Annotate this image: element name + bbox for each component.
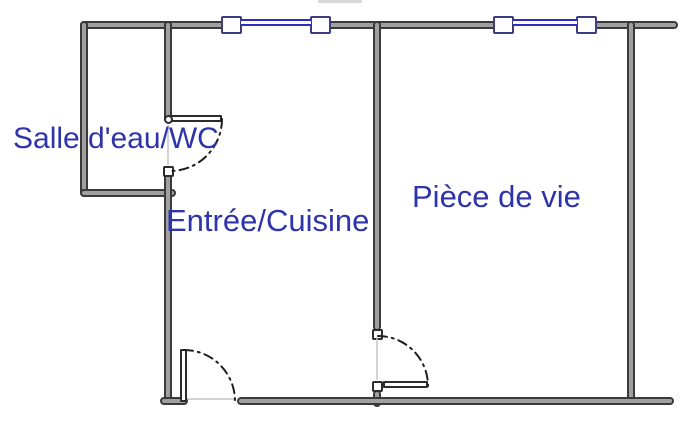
window-frame-block bbox=[576, 16, 597, 34]
right-wall bbox=[627, 21, 635, 405]
window-1 bbox=[221, 16, 331, 34]
room-label-entree-cuisine: Entrée/Cuisine bbox=[166, 205, 369, 236]
window-frame-block bbox=[310, 16, 331, 34]
bathroom-bottom-wall bbox=[80, 189, 176, 197]
window-frame-block bbox=[221, 16, 242, 34]
living-door-swing bbox=[378, 336, 428, 386]
edge-artifact bbox=[318, 0, 362, 3]
bathroom-left-wall bbox=[80, 21, 88, 197]
window-frame-block bbox=[493, 16, 514, 34]
door-jamb bbox=[372, 329, 383, 340]
room-label-salle-deau-wc: Salle d'eau/WC bbox=[13, 124, 219, 154]
hall-left-wall-lower bbox=[164, 166, 172, 405]
door-jamb bbox=[372, 381, 383, 392]
window-glazing bbox=[241, 19, 311, 26]
entrance-door-swing bbox=[184, 350, 235, 401]
bathroom-door-leaf bbox=[169, 115, 222, 122]
window-2 bbox=[493, 16, 597, 34]
living-door-leaf bbox=[383, 381, 428, 388]
door-jamb bbox=[163, 166, 174, 177]
floor-plan: Salle d'eau/WC Entrée/Cuisine Pièce de v… bbox=[0, 0, 700, 429]
bottom-wall-main bbox=[237, 397, 674, 405]
entrance-door-leaf bbox=[180, 349, 187, 402]
partition-wall-upper bbox=[373, 21, 381, 331]
hall-left-wall-upper bbox=[164, 21, 172, 123]
window-glazing bbox=[513, 19, 577, 26]
room-label-piece-de-vie: Pièce de vie bbox=[412, 181, 581, 212]
